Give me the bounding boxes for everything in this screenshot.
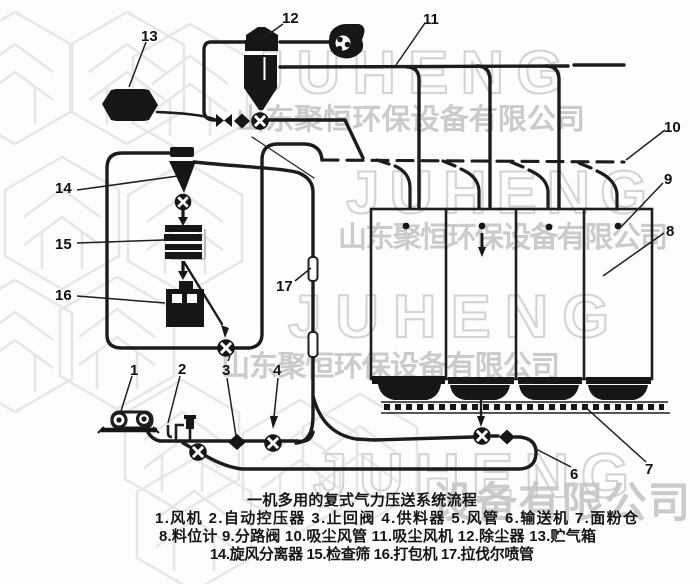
svg-text:7: 7 — [645, 461, 653, 478]
svg-text:10: 10 — [664, 119, 681, 136]
svg-text:1.风机 2.自动控压器 3.止回阀 4.供料器 5.风管: 1.风机 2.自动控压器 3.止回阀 4.供料器 5.风管 6.输送机 7.面粉… — [155, 509, 639, 527]
svg-text:JUHENG: JUHENG — [346, 159, 658, 226]
svg-text:1: 1 — [130, 362, 138, 379]
svg-text:16: 16 — [55, 287, 72, 304]
svg-text:12: 12 — [282, 10, 299, 27]
svg-text:17: 17 — [276, 278, 293, 295]
svg-text:8.料位计 9.分路阀 10.吸尘风管 11.吸尘风机 12: 8.料位计 9.分路阀 10.吸尘风管 11.吸尘风机 12.除尘器 13.贮气… — [159, 527, 596, 545]
svg-text:3: 3 — [222, 362, 230, 379]
svg-text:4: 4 — [273, 362, 282, 379]
svg-text:11: 11 — [423, 11, 439, 28]
svg-text:JUHENG: JUHENG — [288, 283, 620, 350]
svg-text:13: 13 — [141, 28, 158, 45]
svg-text:14: 14 — [55, 180, 72, 197]
svg-text:14.旋风分离器 15.检查筛 16.打包机 17.拉伐尔喷: 14.旋风分离器 15.检查筛 16.打包机 17.拉伐尔喷管 — [210, 545, 534, 563]
svg-text:15: 15 — [55, 236, 72, 253]
svg-text:6: 6 — [570, 466, 578, 483]
svg-text:2: 2 — [178, 361, 186, 378]
svg-text:9: 9 — [664, 171, 672, 188]
svg-text:JUHENG: JUHENG — [251, 39, 574, 106]
svg-text:8: 8 — [666, 223, 674, 240]
svg-text:一机多用的复式气力压送系统流程: 一机多用的复式气力压送系统流程 — [247, 491, 477, 509]
